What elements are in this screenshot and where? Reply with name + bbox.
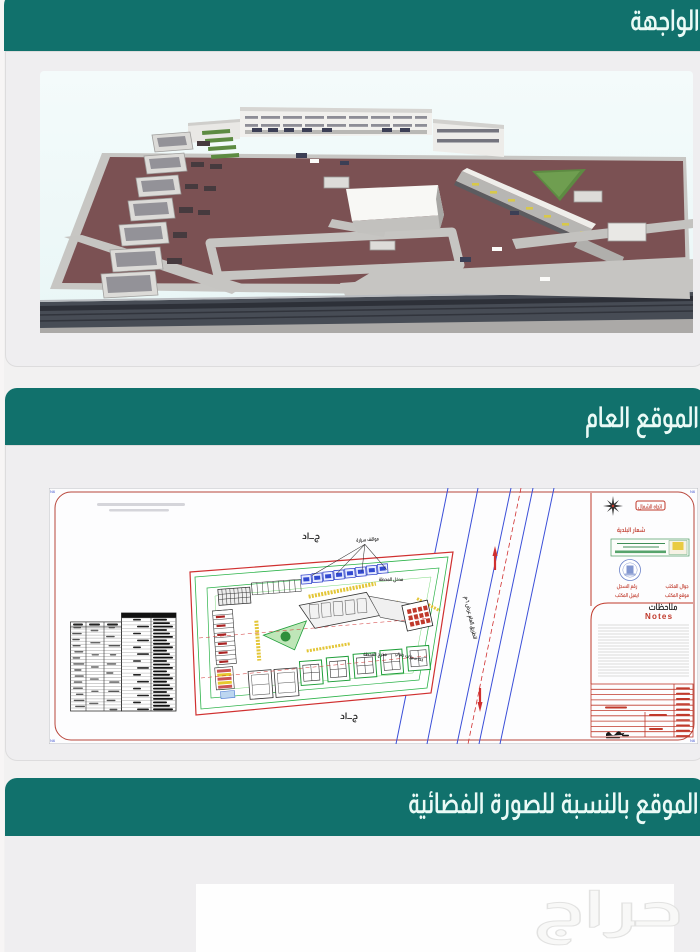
svg-text:N6: N6	[50, 489, 56, 494]
svg-text:Notes: Notes	[645, 612, 673, 621]
svg-text:N6: N6	[50, 738, 56, 743]
svg-text:N6: N6	[690, 738, 696, 743]
svg-text:N6: N6	[690, 489, 696, 494]
